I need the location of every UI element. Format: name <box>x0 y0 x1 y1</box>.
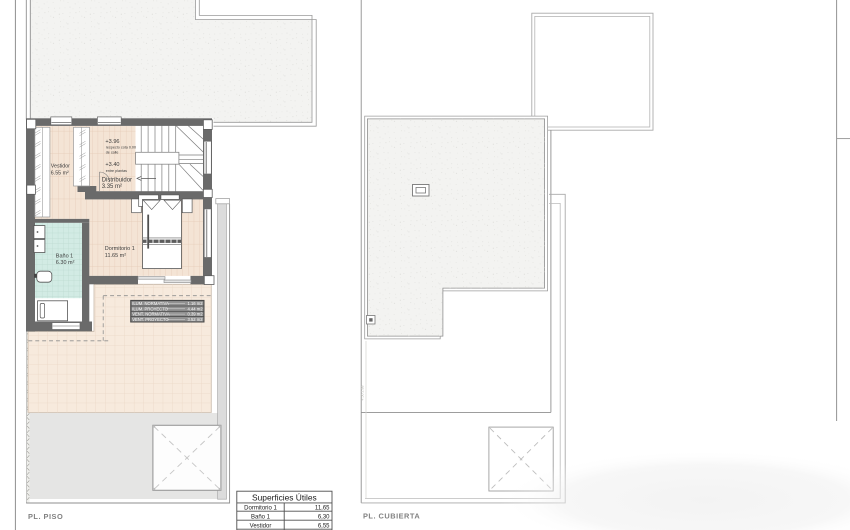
svg-text:VENT. NORMATIVA: VENT. NORMATIVA <box>132 312 170 317</box>
svg-text:11.65 m²: 11.65 m² <box>105 253 126 259</box>
svg-text:11,65: 11,65 <box>315 506 330 512</box>
svg-text:Baño 1: Baño 1 <box>56 254 73 260</box>
svg-text:entre plantas: entre plantas <box>106 169 127 173</box>
svg-text:Vestidor: Vestidor <box>51 164 70 170</box>
svg-text:+3.96: +3.96 <box>105 139 119 145</box>
svg-text:+3.40: +3.40 <box>105 162 119 168</box>
svg-text:PL. PISO: PL. PISO <box>28 512 63 521</box>
svg-text:6.55 m²: 6.55 m² <box>51 171 69 177</box>
svg-text:respecto cota 0.00: respecto cota 0.00 <box>106 145 136 149</box>
svg-text:PL. CUBIERTA: PL. CUBIERTA <box>363 512 420 521</box>
svg-text:Baño 1: Baño 1 <box>251 515 271 521</box>
svg-text:3.52 m2: 3.52 m2 <box>187 317 203 322</box>
svg-text:6.30 m²: 6.30 m² <box>56 260 75 266</box>
svg-text:Vestidor: Vestidor <box>250 524 272 530</box>
svg-text:0.39 m2: 0.39 m2 <box>187 312 203 317</box>
svg-text:6,30: 6,30 <box>318 515 330 521</box>
svg-text:4.50 2.88: 4.50 2.88 <box>361 386 365 401</box>
svg-text:de calle: de calle <box>106 150 119 154</box>
svg-text:Dormitorio 1: Dormitorio 1 <box>244 506 277 512</box>
svg-text:ILUM. PROYECTO: ILUM. PROYECTO <box>132 306 168 311</box>
svg-text:ILUM. NORMATIVA: ILUM. NORMATIVA <box>132 301 169 306</box>
svg-text:4.44 m2: 4.44 m2 <box>187 306 203 311</box>
svg-text:Distribuidor: Distribuidor <box>102 177 132 183</box>
svg-text:3.35 m²: 3.35 m² <box>102 184 122 190</box>
svg-text:VENT. PROYECTO: VENT. PROYECTO <box>132 317 169 322</box>
svg-text:1.16 m2: 1.16 m2 <box>187 301 203 306</box>
svg-text:Dormitorio 1: Dormitorio 1 <box>105 246 135 252</box>
svg-text:6,55: 6,55 <box>318 524 330 530</box>
svg-text:Superficies Útiles: Superficies Útiles <box>252 493 317 503</box>
